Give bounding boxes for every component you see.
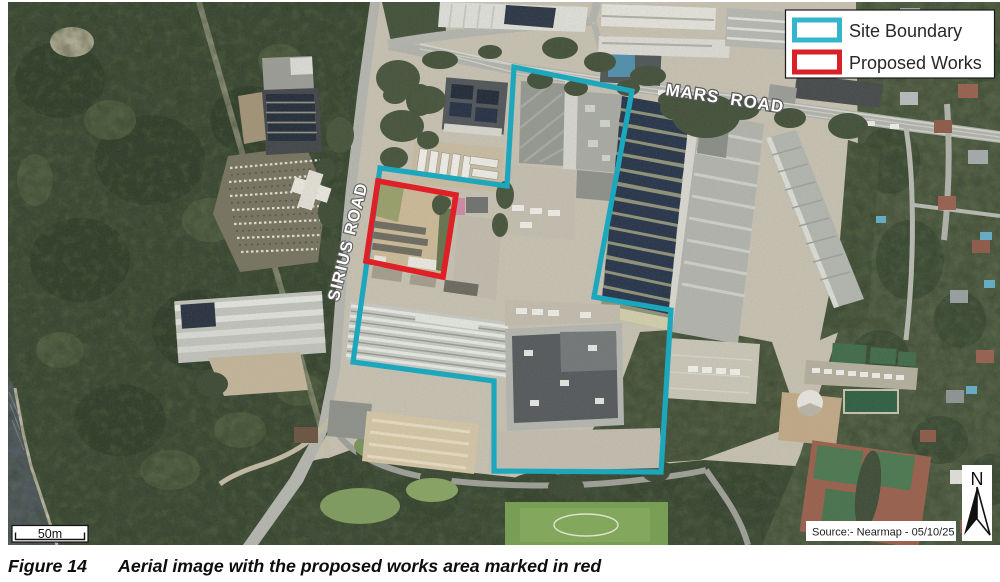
svg-text:Proposed Works: Proposed Works (849, 53, 982, 73)
svg-text:Source:- Nearmap - 05/10/25: Source:- Nearmap - 05/10/25 (812, 527, 954, 539)
svg-text:N: N (971, 469, 984, 489)
svg-text:Site Boundary: Site Boundary (849, 21, 962, 41)
